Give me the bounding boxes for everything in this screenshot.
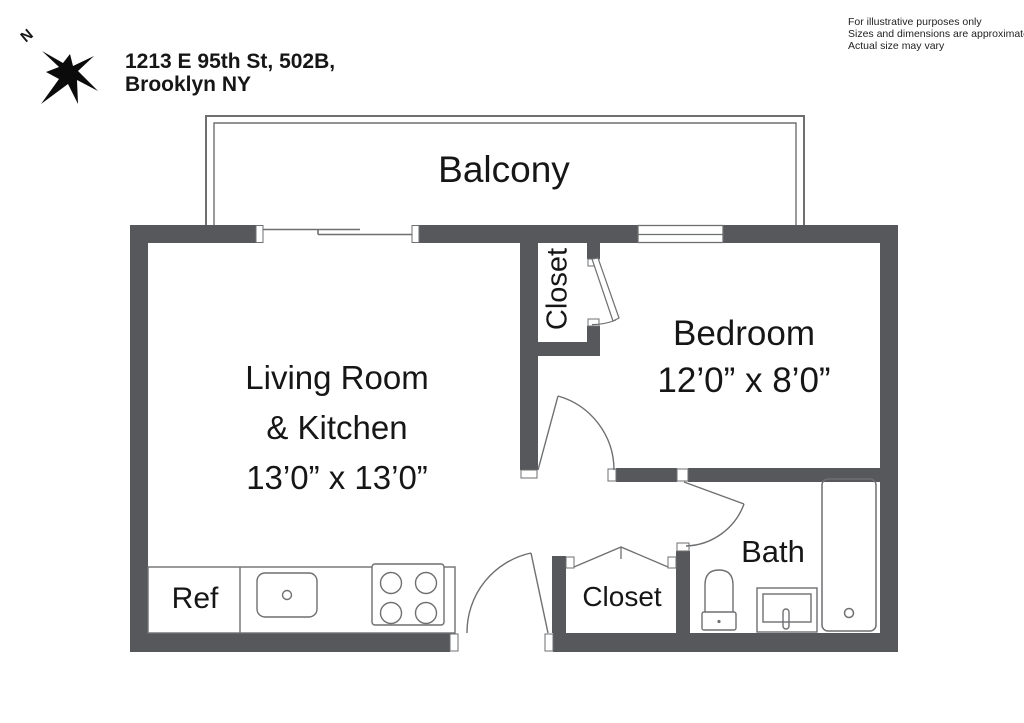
living-room-name-line-1: Living Room <box>245 353 428 403</box>
bathtub <box>822 479 876 631</box>
bedroom-label: Bedroom 12’0” x 8’0” <box>657 310 830 404</box>
toilet <box>702 570 736 630</box>
balcony-sliding-door <box>263 230 412 235</box>
disclaimer-line-1: For illustrative purposes only <box>848 16 1024 28</box>
floor-plan-drawing <box>0 0 1024 723</box>
living-room-name-line-2: & Kitchen <box>245 403 428 453</box>
disclaimer-line-3: Actual size may vary <box>848 40 1024 52</box>
closet-top-door <box>592 258 619 325</box>
closet-top-label: Closet <box>542 248 575 330</box>
living-room-dimensions: 13’0” x 13’0” <box>245 453 428 503</box>
floor-plan-page: N 1213 E 95th St, 502B, Brooklyn NY For … <box>0 0 1024 723</box>
closet-bottom-bifold-door <box>574 547 668 567</box>
bedroom-door <box>538 396 614 470</box>
balcony-label: Balcony <box>438 149 570 191</box>
entry-door <box>467 553 548 633</box>
address: 1213 E 95th St, 502B, Brooklyn NY <box>125 50 335 96</box>
stove <box>372 564 444 625</box>
address-line-1: 1213 E 95th St, 502B, <box>125 50 335 73</box>
living-room-label: Living Room & Kitchen 13’0” x 13’0” <box>245 353 428 503</box>
bedroom-window <box>638 226 723 243</box>
closet-bottom-label: Closet <box>582 581 661 613</box>
disclaimer-line-2: Sizes and dimensions are approximate <box>848 28 1024 40</box>
refrigerator-label: Ref <box>172 582 219 616</box>
address-line-2: Brooklyn NY <box>125 73 335 96</box>
bathroom-sink <box>757 588 817 632</box>
disclaimer: For illustrative purposes only Sizes and… <box>848 16 1024 52</box>
bedroom-name: Bedroom <box>657 310 830 357</box>
bath-label: Bath <box>741 534 805 570</box>
bedroom-dimensions: 12’0” x 8’0” <box>657 357 830 404</box>
bath-door <box>684 482 744 546</box>
compass-rose-icon <box>41 51 98 104</box>
